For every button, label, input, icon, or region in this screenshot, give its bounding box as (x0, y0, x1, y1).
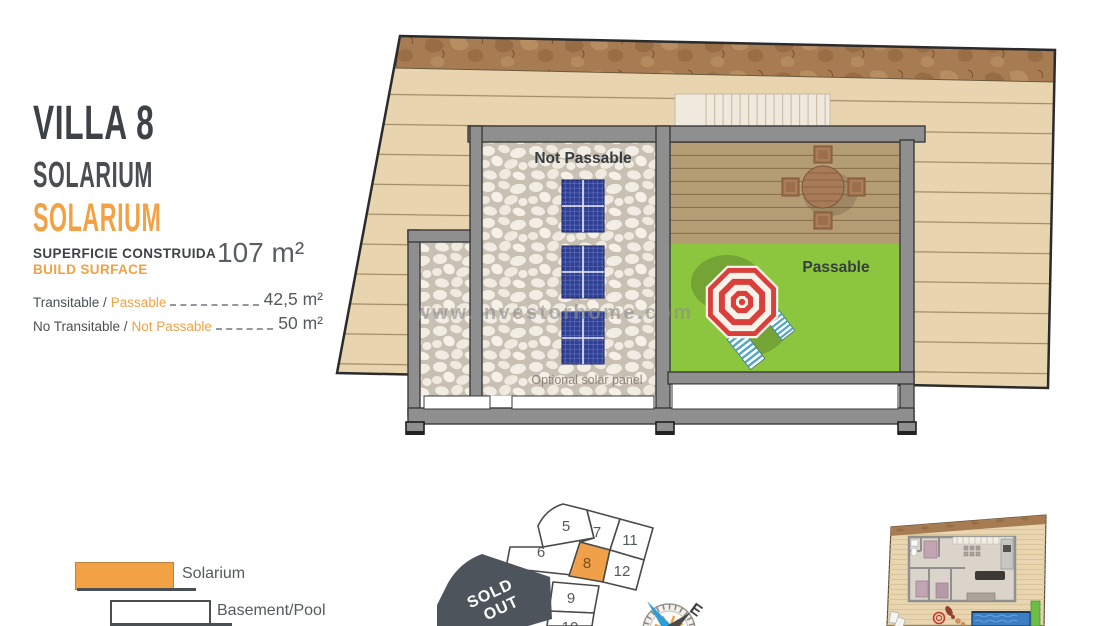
watermark: www.investorhome.com (413, 302, 693, 324)
subtitle-solarium-accent: SOLARIUM (33, 196, 161, 241)
thumb-counter (1001, 539, 1013, 569)
area-label-en: Passable (111, 295, 167, 310)
not-passable-label: Not Passable (534, 150, 632, 167)
thumb-pool (972, 612, 1030, 626)
area-table: Transitable / Passable 42,5 m² No Transi… (33, 286, 323, 334)
area-label-es: No Transitable / (33, 319, 128, 334)
legend-label-basement-pool: Basement/Pool (217, 602, 326, 620)
thumb-building (909, 537, 1015, 601)
thumb-bed (916, 581, 928, 597)
thumb-island (975, 571, 1005, 580)
passable-label: Passable (802, 259, 870, 276)
area-label-en: Not Passable (132, 319, 212, 334)
page: VILLA 8 SOLARIUM SOLARIUM SUPERFICIE CON… (0, 0, 1110, 626)
solar-panel (562, 180, 604, 232)
dotted-leader (170, 304, 258, 306)
build-surface-label-en: BUILD SURFACE (33, 262, 148, 277)
page-title: VILLA 8 (33, 96, 154, 151)
parcel-number: 9 (567, 590, 575, 607)
parcel-number: 8 (583, 555, 591, 572)
compass-rose: E (643, 600, 705, 626)
parcel-number: 10 (562, 619, 579, 626)
area-label-es: Transitable / (33, 295, 107, 310)
area-value: 42,5 m² (264, 289, 323, 310)
solarium-floor-plan: Not Passable Passable Optional solar pan… (330, 18, 1070, 470)
build-surface-value: 107 m² (217, 237, 304, 269)
villa-thumbnail (884, 508, 1110, 626)
area-value: 50 m² (278, 313, 323, 334)
thumb-bed (924, 541, 937, 558)
parcel-number: 5 (562, 518, 570, 535)
legend-swatch-shadow (77, 588, 196, 591)
legend-swatch-solarium (75, 562, 174, 590)
parcel-number: 11 (622, 532, 638, 549)
dotted-leader (216, 328, 273, 330)
solar-panels (562, 180, 604, 364)
parcel-number: 6 (537, 544, 545, 561)
build-surface-label-es: SUPERFICIE CONSTRUIDA (33, 246, 216, 261)
thumb-sofa (967, 593, 995, 601)
optional-solar-label: Optional solar panel (531, 373, 642, 387)
area-row-passable: Transitable / Passable 42,5 m² (33, 286, 323, 310)
area-row-not-passable: No Transitable / Not Passable 50 m² (33, 310, 323, 334)
parcel-number: 12 (614, 563, 631, 580)
thumb-lawn-strip (1031, 601, 1040, 626)
access-stairs (675, 94, 830, 128)
legend-label-solarium: Solarium (182, 565, 245, 583)
parasol (707, 267, 777, 337)
thumb-bed (936, 583, 948, 598)
solar-panel (562, 246, 604, 298)
subtitle-solarium: SOLARIUM (33, 154, 153, 196)
site-map: 5 7 11 6 8 12 9 10 SOLD OUT E (425, 498, 715, 626)
parcel-number: 7 (593, 524, 601, 541)
